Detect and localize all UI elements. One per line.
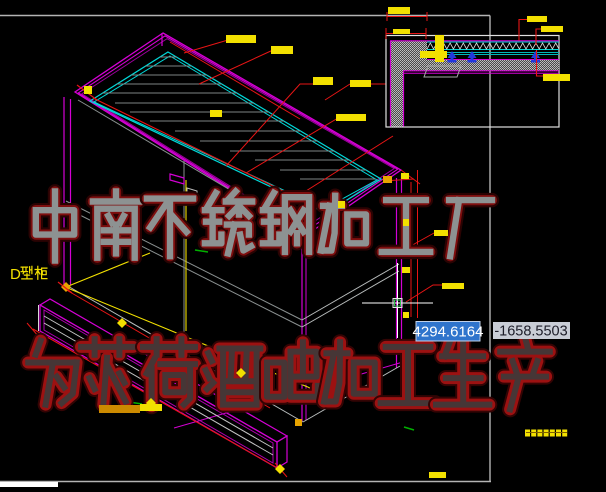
svg-text:-1658.5503: -1658.5503 xyxy=(494,324,567,340)
svg-text:D: D xyxy=(10,266,21,283)
svg-text:4294.6164: 4294.6164 xyxy=(413,324,484,341)
